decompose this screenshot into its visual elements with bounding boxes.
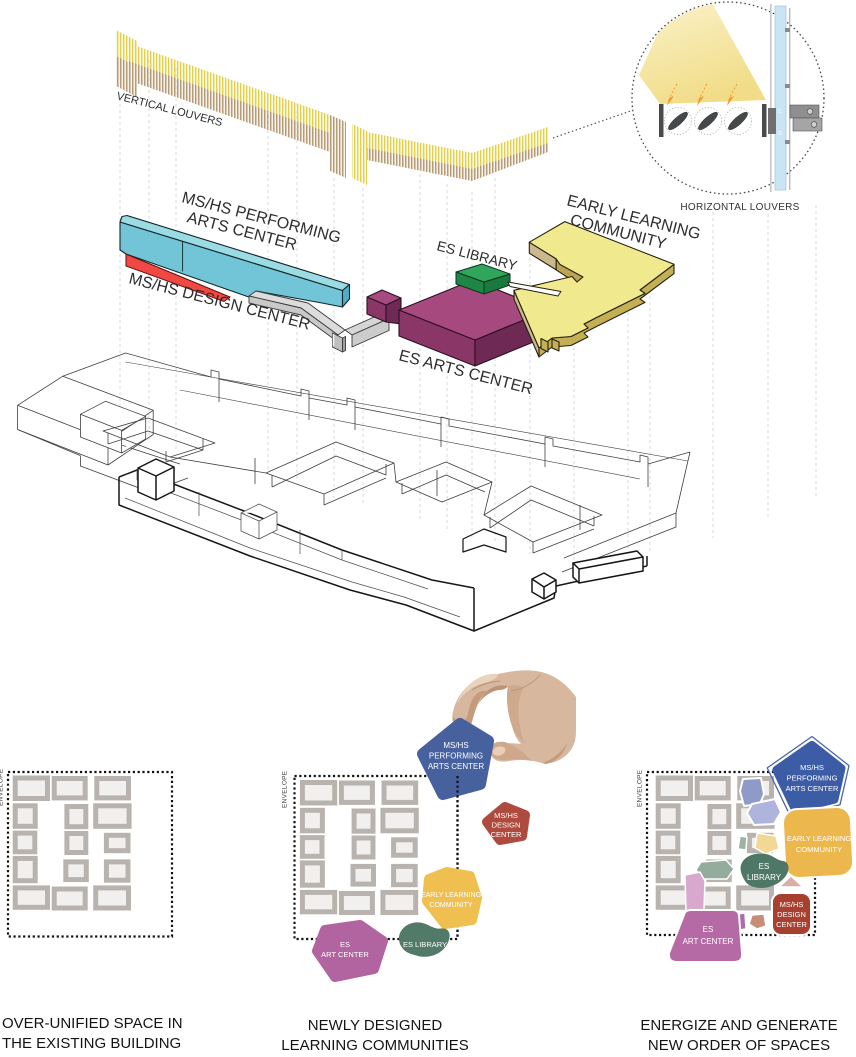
svg-text:CENTER: CENTER [776,920,807,929]
svg-text:ES LIBRARY: ES LIBRARY [403,940,447,949]
svg-text:ARTS CENTER: ARTS CENTER [786,784,839,793]
svg-text:CENTER: CENTER [491,830,522,839]
svg-text:COMMUNITY: COMMUNITY [429,902,472,909]
svg-text:PERFORMING: PERFORMING [787,774,838,783]
svg-text:HORIZONTAL LOUVERS: HORIZONTAL LOUVERS [680,202,799,213]
svg-text:MS/HS: MS/HS [800,763,824,772]
svg-text:LEARNING COMMUNITIES: LEARNING COMMUNITIES [281,1037,469,1054]
svg-text:ES: ES [759,862,770,871]
svg-text:ART CENTER: ART CENTER [321,950,369,959]
svg-text:COMMUNITY: COMMUNITY [796,845,842,854]
svg-text:DESIGN: DESIGN [492,821,521,830]
svg-text:LIBRARY: LIBRARY [747,873,782,882]
svg-text:ARTS CENTER: ARTS CENTER [428,762,485,771]
svg-text:ART CENTER: ART CENTER [683,937,734,946]
svg-text:ENERGIZE AND GENERATE: ENERGIZE AND GENERATE [640,1017,837,1034]
svg-text:NEWLY DESIGNED: NEWLY DESIGNED [308,1017,443,1034]
svg-text:NEW ORDER OF SPACES: NEW ORDER OF SPACES [648,1037,830,1054]
svg-text:ES: ES [703,925,714,934]
svg-text:THE EXISTING BUILDING: THE EXISTING BUILDING [2,1035,181,1052]
svg-text:MS/HS: MS/HS [494,811,518,820]
svg-text:ES: ES [340,940,350,949]
svg-text:DESIGN: DESIGN [777,910,806,919]
svg-text:ENVELOPE: ENVELOPE [282,770,289,808]
svg-text:MS/HS: MS/HS [443,741,468,750]
svg-text:ENVELOPE: ENVELOPE [0,768,5,806]
svg-text:MS/HS: MS/HS [780,900,804,909]
svg-text:EARLY LEARNING: EARLY LEARNING [421,892,481,899]
svg-text:C: C [778,109,782,115]
svg-text:ENVELOPE: ENVELOPE [637,769,644,807]
svg-text:PERFORMING: PERFORMING [429,752,483,761]
svg-text:EARLY LEARNING: EARLY LEARNING [787,834,851,843]
svg-text:OVER-UNIFIED SPACE IN: OVER-UNIFIED SPACE IN [2,1015,183,1032]
svg-text:D: D [778,131,782,137]
